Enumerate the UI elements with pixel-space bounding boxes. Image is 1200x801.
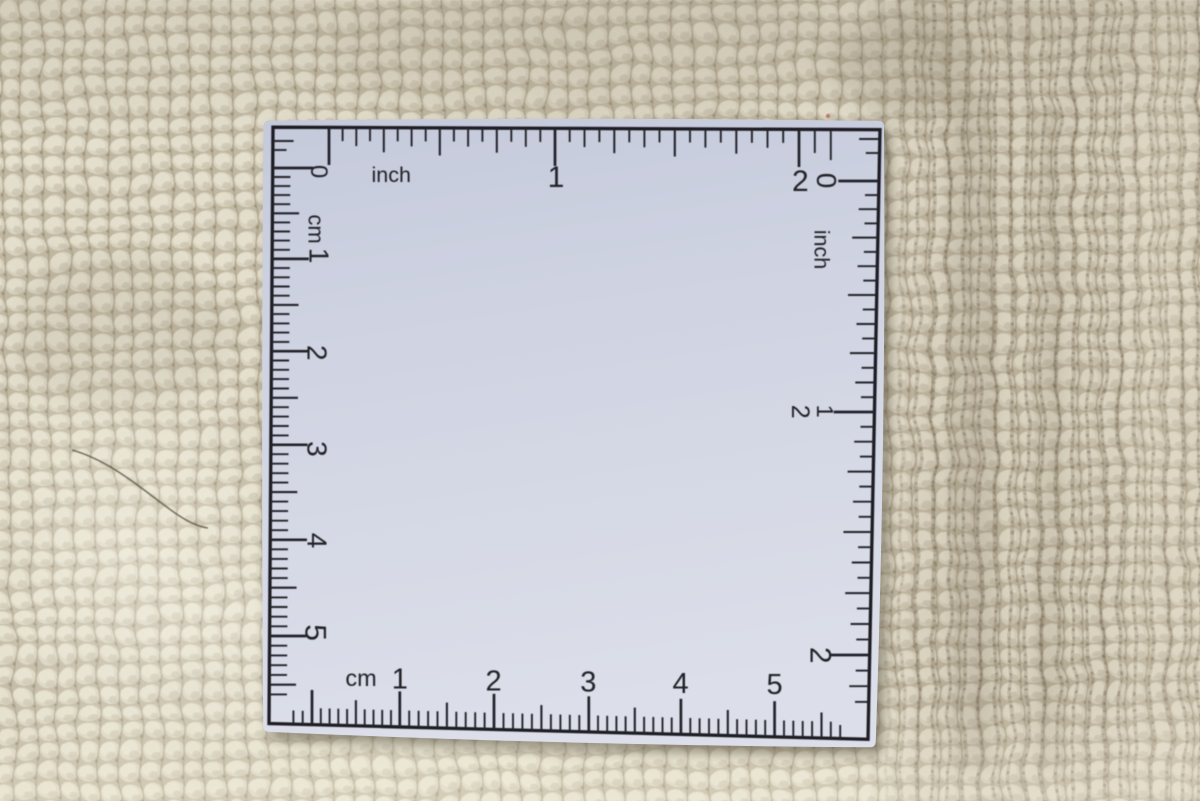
svg-text:0: 0	[305, 165, 332, 178]
svg-text:3: 3	[580, 667, 596, 699]
svg-text:2: 2	[786, 405, 814, 419]
svg-text:5: 5	[298, 624, 331, 641]
svg-text:1: 1	[548, 161, 565, 194]
svg-text:5: 5	[767, 669, 783, 701]
svg-text:0: 0	[811, 173, 842, 189]
svg-text:1: 1	[812, 405, 838, 418]
svg-text:inch: inch	[371, 163, 410, 187]
svg-text:3: 3	[301, 441, 332, 457]
svg-text:4: 4	[301, 533, 332, 549]
svg-text:cm: cm	[303, 214, 328, 243]
svg-text:inch: inch	[810, 230, 834, 269]
svg-text:2: 2	[804, 647, 837, 664]
svg-text:2: 2	[486, 666, 502, 698]
svg-text:4: 4	[673, 668, 689, 700]
svg-text:1: 1	[392, 664, 408, 696]
svg-text:cm: cm	[345, 665, 376, 691]
svg-text:1: 1	[303, 248, 334, 264]
svg-text:2: 2	[792, 165, 809, 198]
svg-text:2: 2	[301, 345, 332, 361]
